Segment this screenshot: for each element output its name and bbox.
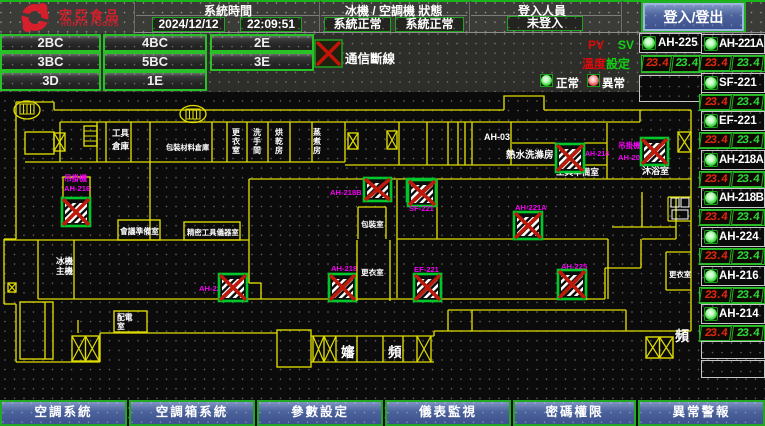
svg-text:吊掛機: 吊掛機 — [618, 140, 641, 150]
svg-text:頻: 頻 — [675, 328, 689, 344]
svg-text:烘乾房: 烘乾房 — [275, 127, 283, 155]
svg-text:AH-214: AH-214 — [585, 151, 609, 158]
svg-text:EF-221: EF-221 — [414, 265, 440, 274]
svg-text:冰機: 冰機 — [56, 256, 74, 266]
svg-text:AH-216: AH-216 — [64, 184, 90, 193]
svg-text:吊掛機: 吊掛機 — [64, 173, 87, 183]
svg-text:配電: 配電 — [117, 312, 133, 322]
svg-text:更衣室: 更衣室 — [232, 127, 241, 155]
svg-text:包裝材料倉庫: 包裝材料倉庫 — [166, 143, 210, 152]
svg-text:沐浴室: 沐浴室 — [642, 165, 669, 176]
svg-text:精密工具儀器室: 精密工具儀器室 — [187, 228, 239, 237]
svg-text:更衣室: 更衣室 — [361, 267, 384, 277]
svg-text:倉庫: 倉庫 — [111, 141, 130, 151]
svg-text:蒸煮房: 蒸煮房 — [312, 127, 321, 155]
svg-text:嬸: 嬸 — [341, 344, 355, 360]
svg-text:洗手間: 洗手間 — [253, 127, 261, 155]
svg-text:AH-218: AH-218 — [331, 264, 357, 273]
svg-text:AH-218B: AH-218B — [330, 188, 362, 197]
svg-text:室: 室 — [117, 321, 125, 331]
svg-text:頻: 頻 — [388, 344, 402, 360]
svg-text:更衣室: 更衣室 — [669, 270, 692, 279]
svg-text:會議準備室: 會議準備室 — [119, 226, 159, 236]
svg-text:包裝室: 包裝室 — [361, 219, 384, 229]
svg-text:AH-221A: AH-221A — [515, 203, 547, 212]
svg-text:SF-221: SF-221 — [409, 204, 435, 213]
svg-text:熱水洗滌房: 熱水洗滌房 — [506, 149, 554, 161]
svg-text:主機: 主機 — [56, 266, 74, 276]
svg-text:AH-03: AH-03 — [484, 132, 510, 142]
svg-text:工具: 工具 — [112, 128, 130, 138]
